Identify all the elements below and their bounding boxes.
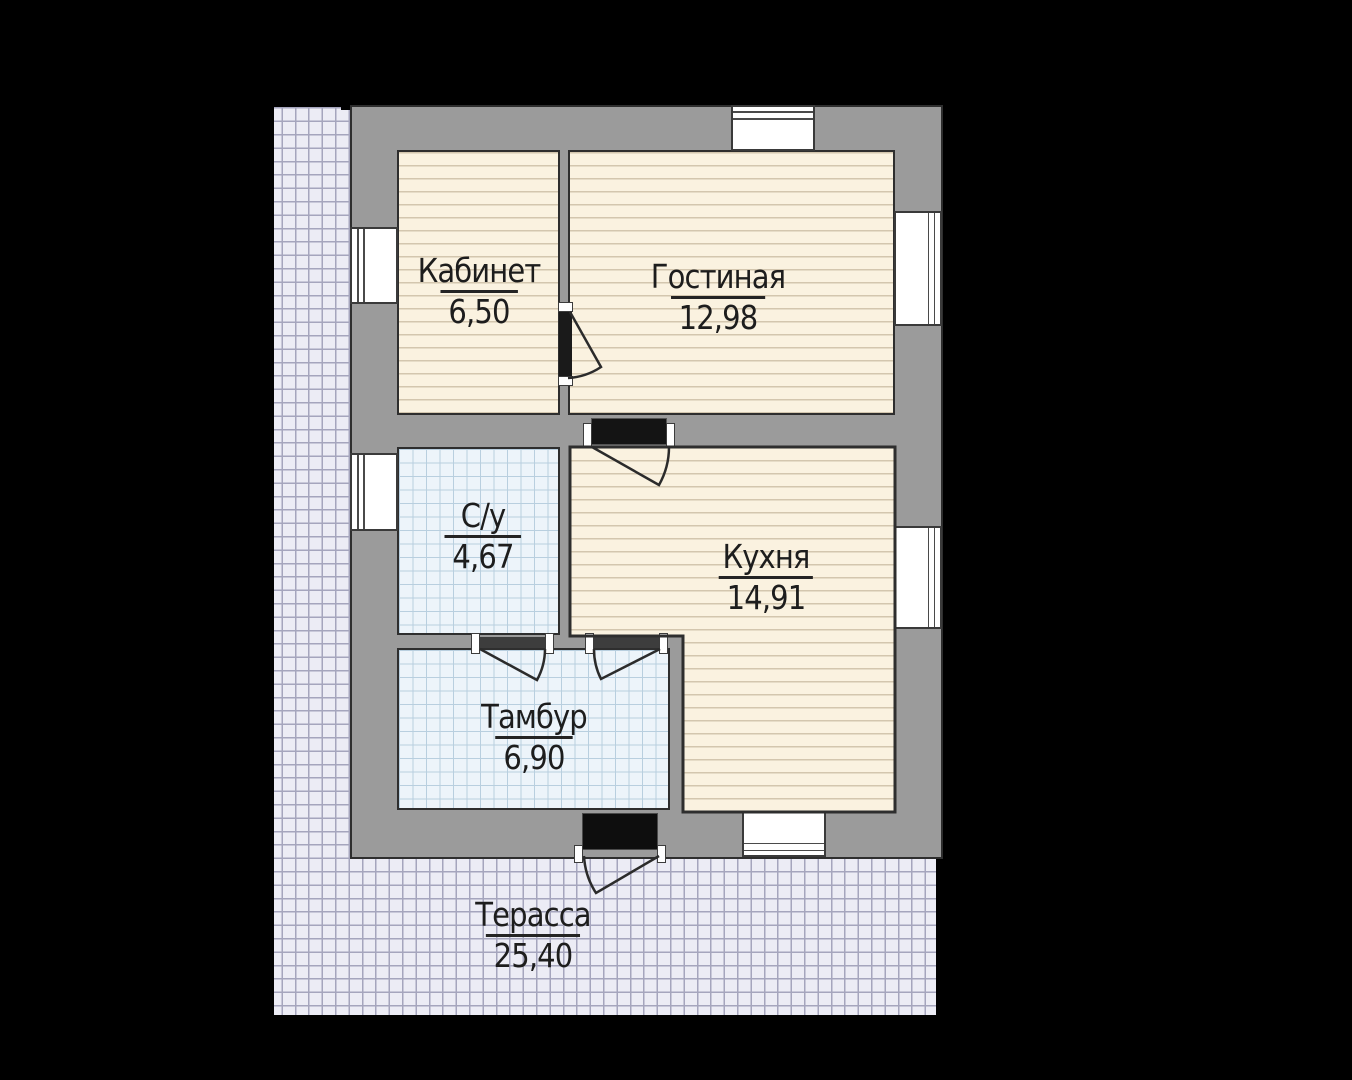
room-label-su: С/у 4,67: [445, 497, 522, 576]
door-jamb: [545, 633, 554, 654]
door-jamb: [583, 423, 592, 448]
door-jamb: [558, 376, 573, 386]
door-kabinet-gostinaya: [559, 311, 572, 377]
room-label-gostinaya: Гостиная 12,98: [651, 258, 785, 337]
door-jamb: [558, 302, 573, 312]
room-label-kuhnya: Кухня 14,91: [719, 538, 814, 617]
room-area: 25,40: [486, 934, 581, 975]
room-label-terassa: Терасса 25,40: [475, 896, 590, 975]
window-gostinaya-east: [894, 211, 942, 326]
window-su-west: [350, 453, 398, 531]
room-name: Тамбур: [481, 698, 587, 735]
door-jamb: [657, 845, 666, 863]
door-tambur-su: [479, 637, 546, 648]
room-area: 14,91: [719, 576, 814, 617]
room-area: 6,50: [441, 290, 518, 331]
door-jamb: [585, 633, 594, 654]
door-jamb: [471, 633, 480, 654]
door-jamb: [666, 423, 675, 448]
window-kuhnya-south: [742, 811, 826, 857]
door-gostinaya-kuhnya: [591, 418, 667, 445]
floor-plan: Кабинет 6,50 Гостиная 12,98 С/у 4,67 Кух…: [0, 0, 1352, 1080]
window-kabinet-west: [350, 227, 398, 304]
room-name: Терасса: [475, 896, 590, 933]
room-name: С/у: [445, 497, 522, 534]
door-tambur-kuhnya: [593, 637, 661, 648]
room-area: 4,67: [445, 535, 522, 576]
room-name: Кухня: [719, 538, 814, 575]
room-name: Кабинет: [418, 252, 541, 289]
room-label-tambur: Тамбур 6,90: [481, 698, 587, 777]
window-gostinaya-north: [731, 105, 815, 151]
door-jamb: [659, 633, 668, 654]
room-label-kabinet: Кабинет 6,50: [418, 252, 541, 331]
door-entrance: [582, 813, 658, 850]
window-kuhnya-east: [894, 526, 942, 629]
door-jamb: [574, 845, 583, 863]
room-area: 6,90: [496, 736, 573, 777]
room-area: 12,98: [671, 296, 766, 337]
room-name: Гостиная: [651, 258, 785, 295]
